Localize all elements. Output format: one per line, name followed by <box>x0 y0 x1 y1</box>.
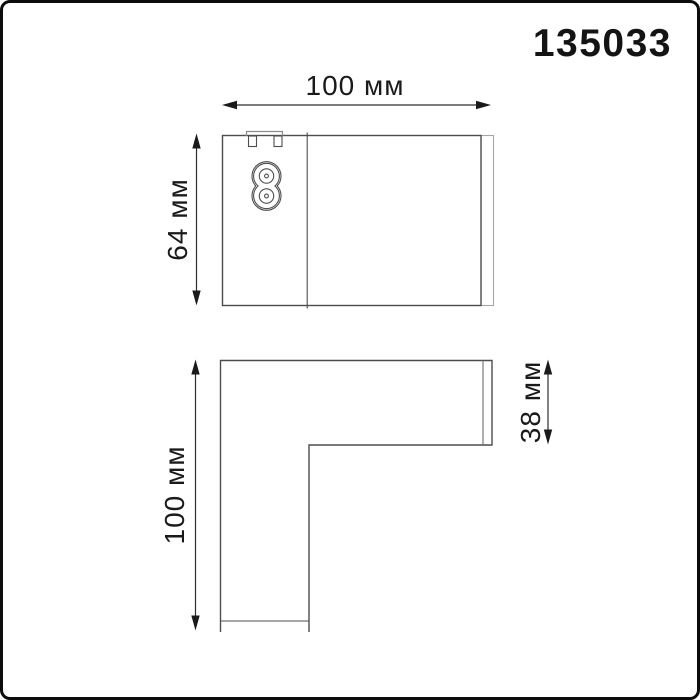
top-width-label: 100 мм <box>306 70 405 101</box>
top-view: 100 мм 64 мм <box>162 70 494 309</box>
product-code: 135033 <box>533 22 672 65</box>
technical-drawing: 135033 100 мм 64 мм <box>3 3 697 697</box>
arrow-down-icon <box>192 291 200 306</box>
front-view-outline <box>221 361 493 633</box>
arrow-right-icon <box>476 101 491 109</box>
top-width-dimension: 100 мм <box>222 70 491 109</box>
top-view-body <box>223 136 482 306</box>
arrow-up-icon <box>192 134 200 149</box>
profile-label: 38 мм <box>515 361 546 443</box>
drawing-frame: 135033 100 мм 64 мм <box>0 0 700 700</box>
profile-dimension: 38 мм <box>515 360 552 445</box>
front-view: 100 мм 38 мм <box>159 360 552 633</box>
front-height-dimension: 100 мм <box>159 360 200 631</box>
arrow-down-icon <box>191 616 199 631</box>
arrow-up-icon <box>191 360 199 375</box>
top-view-end-cap <box>481 136 494 306</box>
arrow-left-icon <box>222 101 237 109</box>
top-height-label: 64 мм <box>162 178 193 260</box>
front-height-label: 100 мм <box>159 446 190 545</box>
top-height-dimension: 64 мм <box>162 134 201 306</box>
